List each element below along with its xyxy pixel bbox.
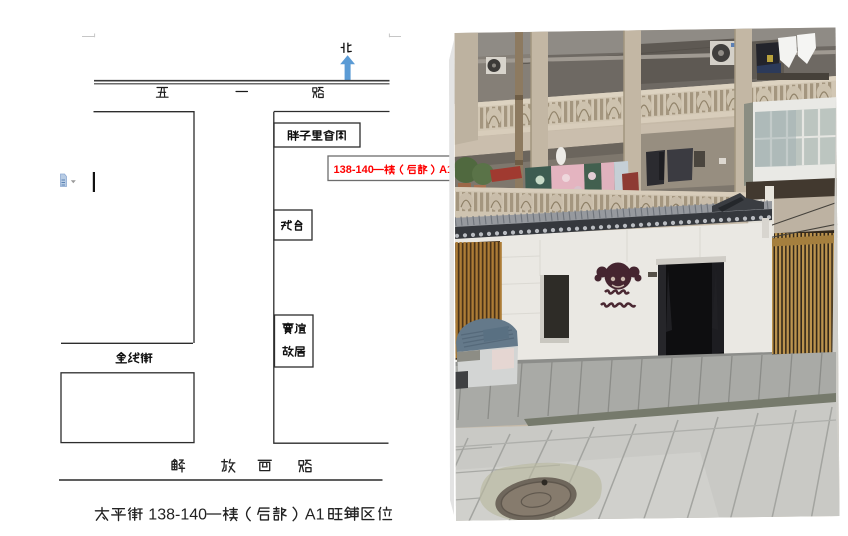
svg-text:138-140: 138-140: [148, 506, 207, 523]
svg-text:A1: A1: [305, 506, 325, 523]
svg-text:138-140: 138-140: [334, 164, 374, 176]
